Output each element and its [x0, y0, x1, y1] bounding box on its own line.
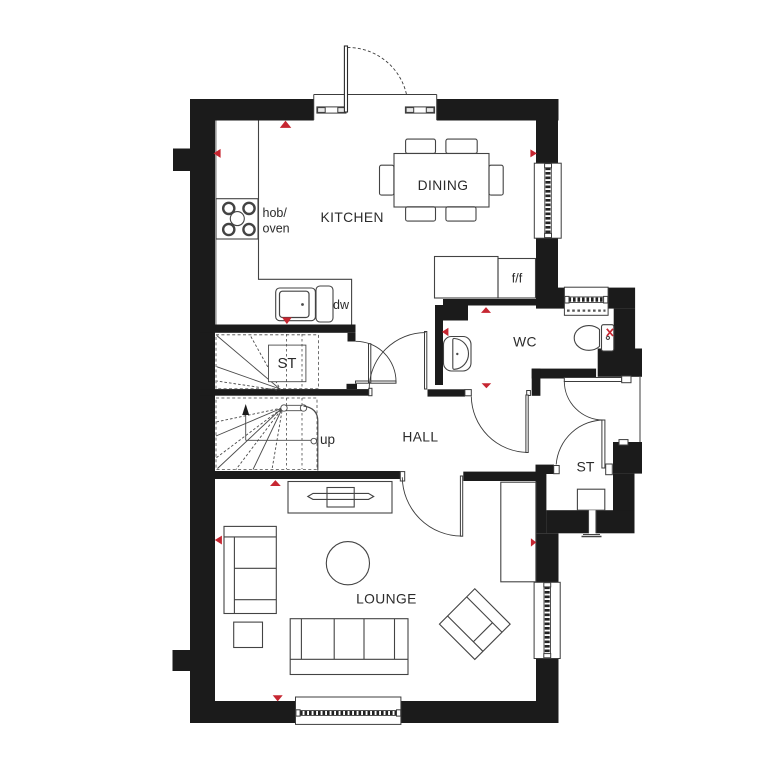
svg-text:ST: ST — [278, 356, 297, 372]
svg-text:ST: ST — [577, 459, 595, 475]
svg-text:WC: WC — [513, 335, 537, 350]
svg-text:oven: oven — [263, 222, 290, 236]
svg-text:KITCHEN: KITCHEN — [321, 210, 384, 225]
svg-text:hob/: hob/ — [263, 206, 288, 220]
svg-text:HALL: HALL — [402, 430, 438, 445]
svg-text:LOUNGE: LOUNGE — [356, 592, 417, 607]
svg-text:dw: dw — [333, 298, 350, 312]
svg-text:f/f: f/f — [512, 272, 523, 286]
svg-text:DINING: DINING — [418, 178, 469, 193]
svg-text:up: up — [320, 432, 335, 447]
